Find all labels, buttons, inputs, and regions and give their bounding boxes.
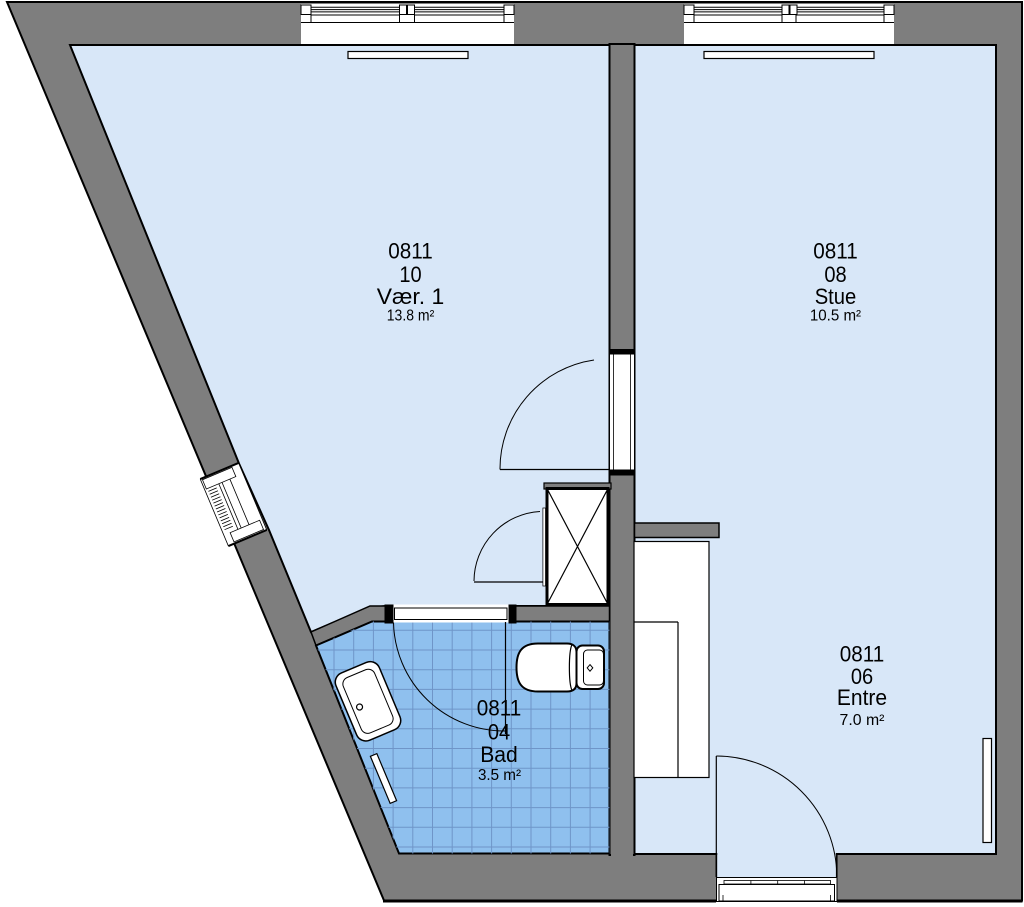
svg-text:Bad: Bad — [480, 742, 518, 767]
svg-text:3.5 m²: 3.5 m² — [478, 767, 521, 784]
svg-text:0811: 0811 — [840, 642, 885, 667]
svg-text:13.8 m²: 13.8 m² — [387, 307, 435, 324]
svg-text:0811: 0811 — [477, 696, 522, 721]
svg-text:0811: 0811 — [388, 239, 433, 264]
svg-text:Entre: Entre — [837, 685, 887, 710]
svg-text:Vær. 1: Vær. 1 — [377, 284, 445, 309]
svg-text:Stue: Stue — [815, 284, 857, 309]
svg-text:04: 04 — [488, 720, 510, 745]
svg-text:7.0 m²: 7.0 m² — [840, 712, 885, 729]
svg-text:10.5 m²: 10.5 m² — [810, 307, 861, 324]
svg-text:0811: 0811 — [813, 239, 858, 264]
